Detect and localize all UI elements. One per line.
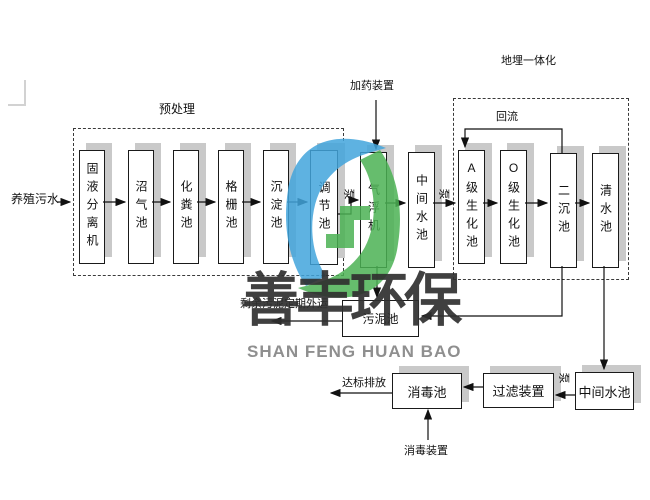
dosing-device-label: 加药装置	[350, 77, 394, 93]
pretreatment-title: 预处理	[159, 100, 195, 117]
node-label: A级生化池	[466, 161, 478, 253]
pump-label-3: 泵	[557, 373, 573, 384]
pump-label-1: 泵	[342, 189, 358, 200]
node-label: 化粪池	[180, 180, 192, 234]
node-secondary-sedimentation: 二沉池	[550, 153, 577, 268]
node-regulating-tank: 调节池	[310, 150, 338, 265]
node-sludge-tank: 污泥池	[342, 300, 419, 337]
node-clear-water-tank: 清水池	[592, 153, 619, 268]
sludge-out-label: 剩余污泥定期外运	[240, 295, 328, 311]
node-label: 固液分离机	[86, 162, 98, 252]
reflux-label: 回流	[496, 108, 518, 124]
node-label: 消毒池	[407, 382, 446, 401]
node-label: 沉淀池	[270, 180, 282, 234]
node-intermediate-tank-1: 中间水池	[408, 152, 435, 268]
pump-label-2: 泵	[437, 189, 453, 200]
page-corner-mark	[8, 104, 26, 106]
node-label: 气浮机	[368, 183, 380, 237]
node-disinfection-tank: 消毒池	[392, 373, 462, 409]
discharge-label: 达标排放	[342, 374, 386, 390]
node-intermediate-tank-2: 中间水池	[575, 372, 634, 410]
node-septic-tank: 化粪池	[173, 150, 199, 264]
node-label: 中间水池	[578, 382, 630, 401]
disinfection-device-label: 消毒装置	[404, 442, 448, 458]
node-label: O级生化池	[508, 161, 520, 253]
node-label: 沼气池	[135, 180, 147, 234]
watermark-pinyin: SHAN FENG HUAN BAO	[247, 342, 461, 362]
node-biogas-tank: 沼气池	[128, 150, 154, 264]
page-corner-mark	[24, 80, 26, 106]
node-filter-device: 过滤装置	[483, 373, 554, 408]
pretreatment-section-box	[73, 128, 344, 276]
node-a-level-biochemical: A级生化池	[458, 150, 485, 264]
node-sedimentation-tank: 沉淀池	[263, 150, 289, 264]
process-flow-diagram: 预处理 地埋一体化 回流 加药装置 养殖污水 固液分离机 沼气池 化粪池 格栅池…	[0, 0, 650, 500]
node-label: 清水池	[600, 184, 612, 238]
node-grille-tank: 格栅池	[218, 150, 244, 264]
node-label: 过滤装置	[492, 381, 544, 400]
node-o-level-biochemical: O级生化池	[500, 150, 527, 264]
node-label: 二沉池	[558, 184, 570, 238]
influent-label: 养殖污水	[11, 190, 59, 207]
node-label: 污泥池	[362, 310, 398, 327]
node-label: 调节池	[318, 181, 330, 235]
node-air-flotation: 气浮机	[360, 152, 387, 268]
node-label: 中间水池	[416, 174, 428, 246]
integrated-title: 地埋一体化	[501, 52, 556, 68]
node-label: 格栅池	[225, 180, 237, 234]
node-solid-liquid-separator: 固液分离机	[79, 150, 105, 264]
